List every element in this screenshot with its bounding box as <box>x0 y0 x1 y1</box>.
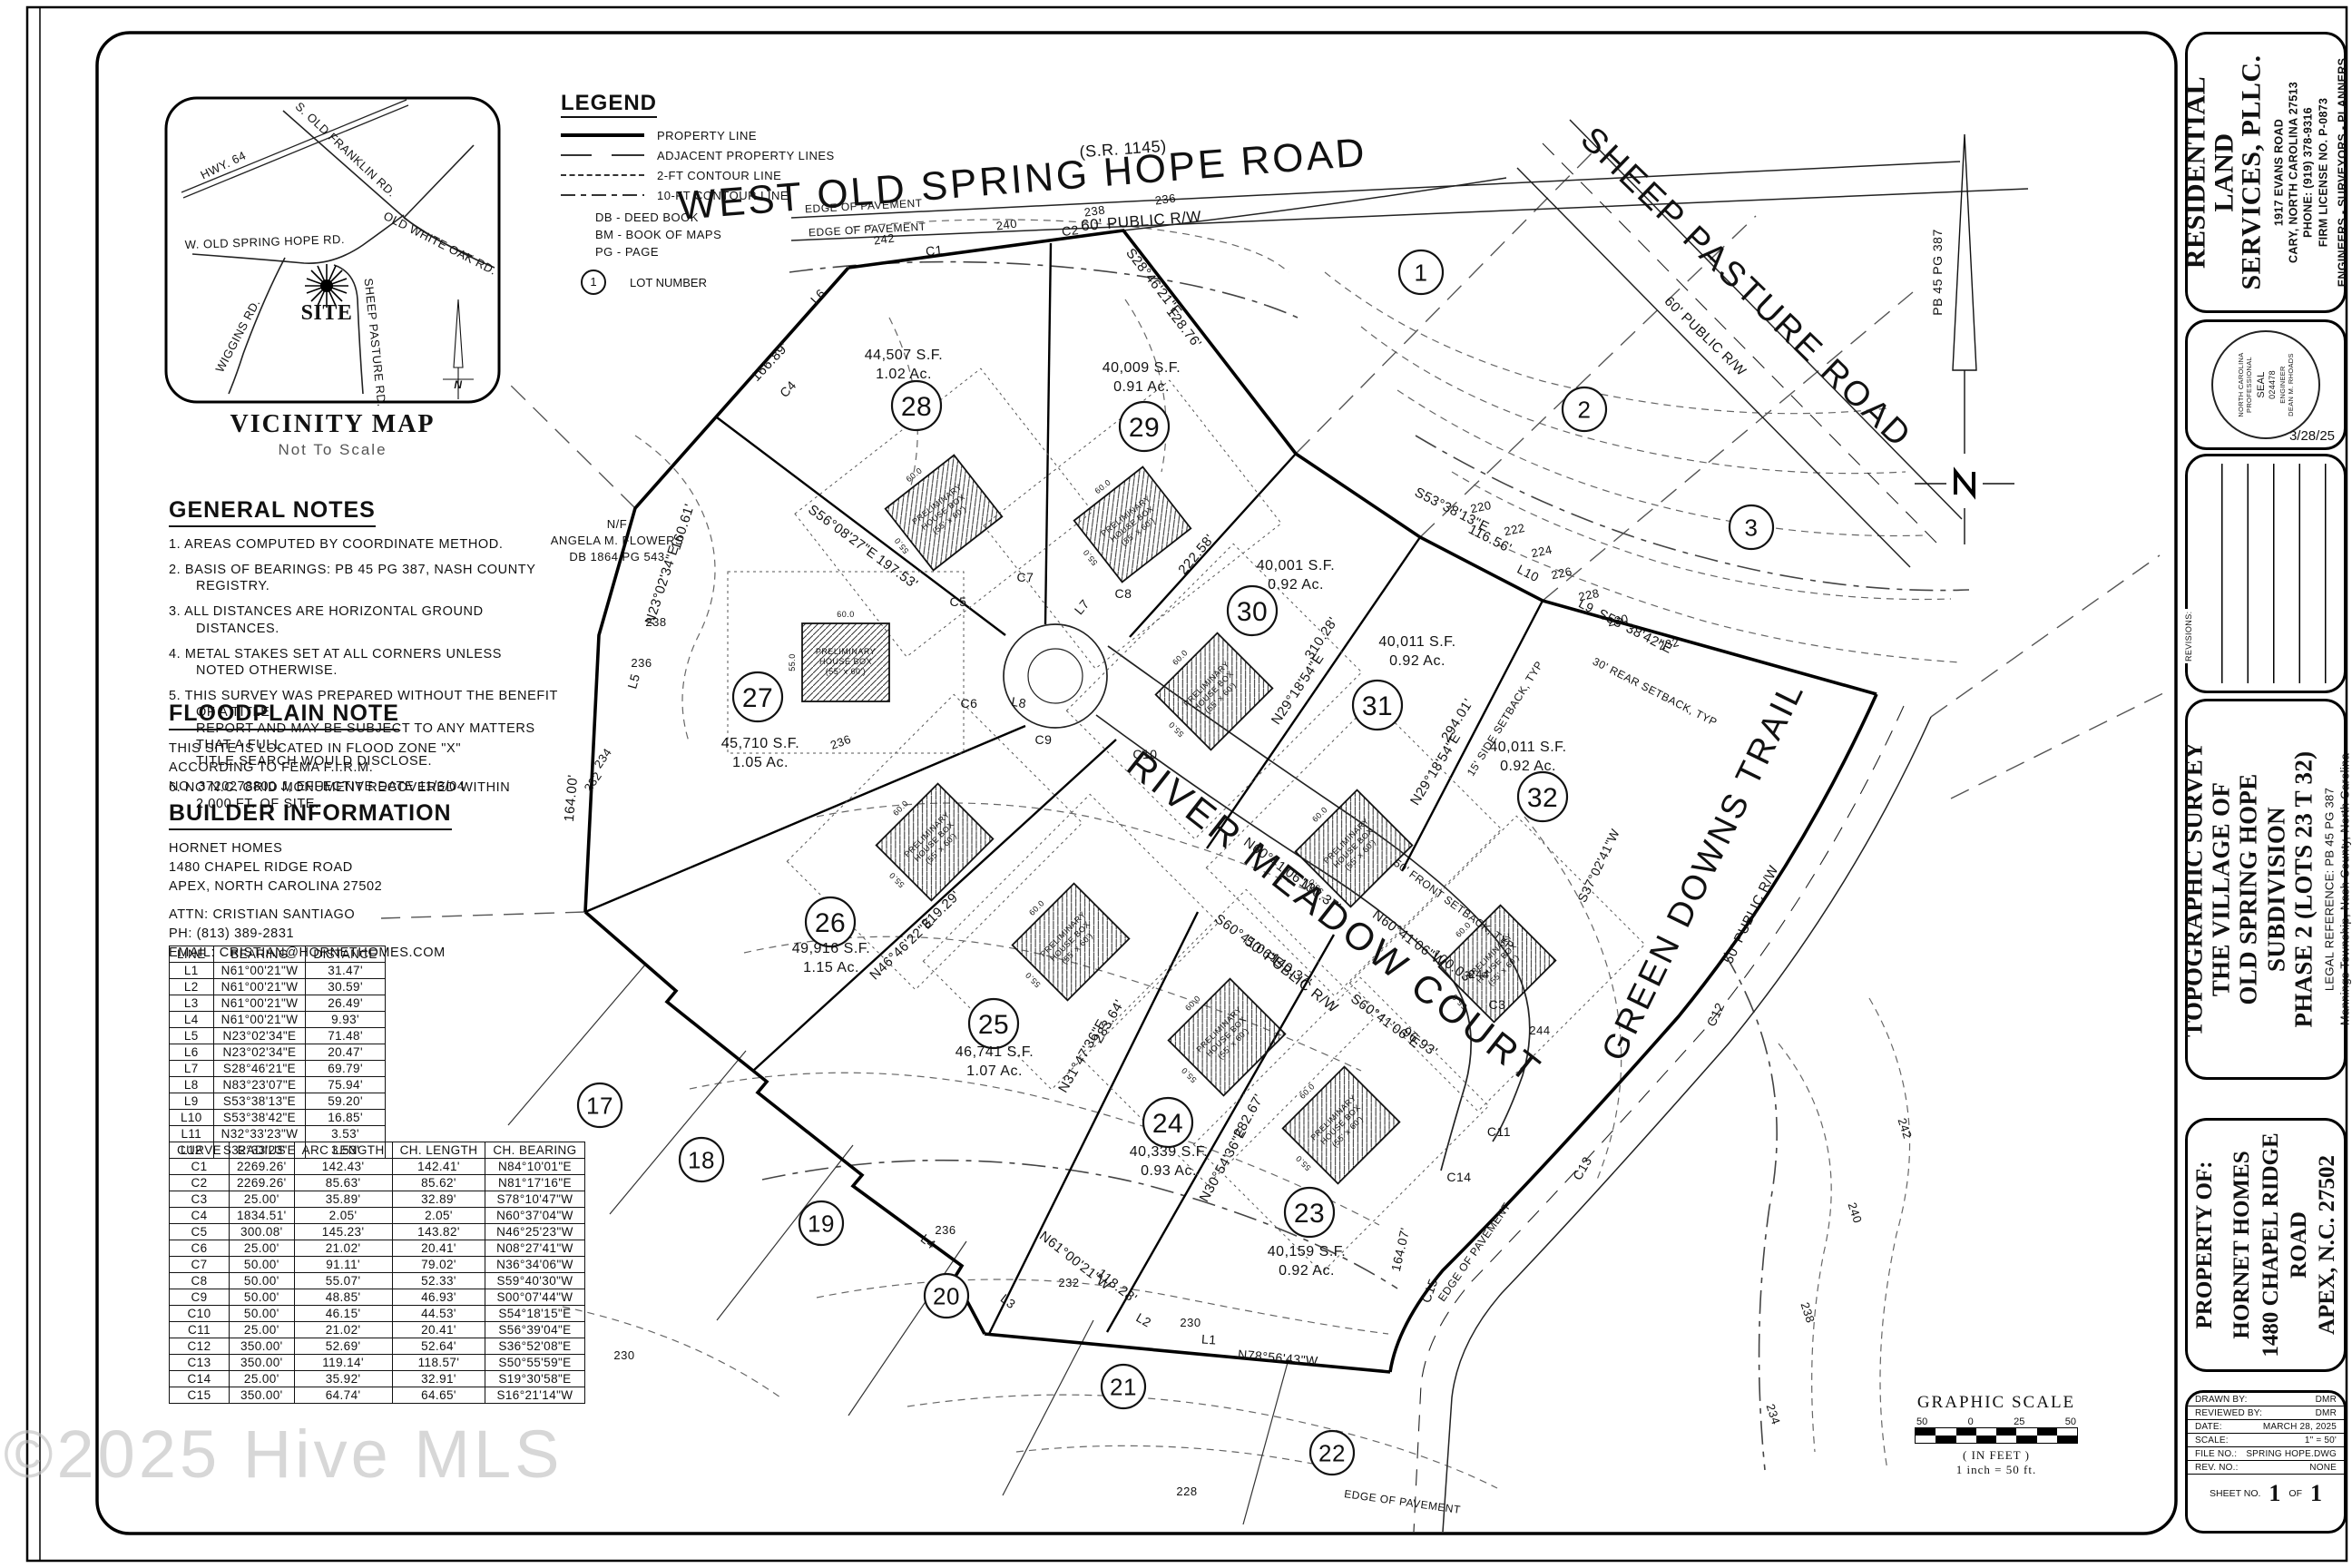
plat-annotation: C11 <box>1487 1124 1511 1139</box>
table-cell: C8 <box>170 1273 230 1289</box>
table-cell: C2 <box>170 1175 230 1191</box>
lot-number: 28 <box>901 392 932 422</box>
table-cell: 25.00' <box>230 1322 295 1338</box>
list-item <box>169 897 568 906</box>
firm-address1: 1917 EVANS ROAD <box>2271 40 2286 305</box>
table-cell: ARC LENGTH <box>294 1142 392 1159</box>
firm-block: RESIDENTIAL LAND SERVICES, PLLC. 1917 EV… <box>2185 32 2347 313</box>
table-cell: L4 <box>170 1012 214 1028</box>
legend-item-2ft-contour: 2-FT CONTOUR LINE <box>561 165 924 185</box>
lot-number: 1 <box>1415 259 1428 286</box>
road-sheep-pasture <box>1517 120 1962 567</box>
plat-annotation: C12 <box>1703 1000 1727 1028</box>
table-cell: 16.85' <box>306 1110 385 1126</box>
plat-annotation: C13 <box>1570 1154 1594 1183</box>
table-cell: N61°00'21"W <box>213 979 306 995</box>
table-cell: S00°07'44"W <box>485 1289 584 1306</box>
table-cell: C11 <box>170 1322 230 1338</box>
lot-number: 26 <box>815 908 846 938</box>
table-cell: 91.11' <box>294 1257 392 1273</box>
lot-area-acres: 1.07 Ac. <box>966 1063 1023 1079</box>
seal-date: 3/28/25 <box>2289 428 2335 444</box>
plat-annotation: C5 <box>950 594 967 609</box>
info-scale: SCALE:1" = 50' <box>2188 1434 2344 1447</box>
house-box-dim: 55.0 <box>788 653 797 671</box>
firm-name-line1: RESIDENTIAL LAND <box>2183 40 2239 305</box>
table-cell: 69.79' <box>306 1061 385 1077</box>
contour-label: 240 <box>995 217 1018 233</box>
house-box: PRELIMINARYHOUSE BOX(55' x 60')60.055.0 <box>1263 1057 1400 1194</box>
table-cell: S56°39'04"E <box>485 1322 584 1338</box>
table-cell: C3 <box>170 1191 230 1208</box>
table-cell: 79.02' <box>392 1257 485 1273</box>
survey-legal-reference: LEGAL REFERENCE: PB 45 PG 387 <box>2323 708 2337 1071</box>
curve-table: CURVERADIUSARC LENGTHCH. LENGTHCH. BEARI… <box>169 1142 585 1404</box>
table-cell: 1834.51' <box>230 1208 295 1224</box>
plat-annotation: C4 <box>777 377 799 400</box>
list-item: 3. ALL DISTANCES ARE HORIZONTAL GROUND D… <box>169 603 568 636</box>
owner-name: HORNET HOMES <box>2228 1126 2256 1364</box>
seal-arc1: NORTH CAROLINA <box>2237 352 2245 416</box>
property-line-sample <box>561 133 644 137</box>
table-cell: N61°00'21"W <box>213 963 306 979</box>
builder-title: BUILDER INFORMATION <box>169 800 452 830</box>
table-cell: C4 <box>170 1208 230 1224</box>
seal-arc2: PROFESSIONAL <box>2245 352 2253 416</box>
builder-information: BUILDER INFORMATION HORNET HOMES 1480 CH… <box>169 800 568 963</box>
lot-area-sf: 49,916 S.F. <box>792 941 870 956</box>
table-cell: LINE <box>170 946 214 963</box>
house-box-label: HOUSE BOX <box>819 657 872 666</box>
lot-number: 18 <box>688 1146 715 1173</box>
firm-phone: PHONE: (919) 378-9316 <box>2301 40 2316 305</box>
seal-engineer: ENGINEER <box>2278 352 2287 416</box>
plat-labels: (S.R. 1145)WEST OLD SPRING HOPE ROAD60' … <box>551 120 1945 1516</box>
seal-word: SEAL <box>2256 352 2269 416</box>
contour-label: 238 <box>645 615 666 629</box>
plat-annotation: EDGE OF PAVEMENT <box>1436 1200 1514 1303</box>
contour-label: 226 <box>1550 564 1573 582</box>
plat-annotation: N78°56'43"W <box>1238 1347 1319 1368</box>
lot-area-acres: 1.15 Ac. <box>803 960 859 975</box>
graphic-scale: GRAPHIC SCALE 500 2550 ( IN FEET ) 1 inc… <box>1915 1393 2078 1477</box>
house-box: PRELIMINARYHOUSE BOX(55' x 60')60.055.0 <box>1149 969 1286 1106</box>
table-cell: 21.02' <box>294 1240 392 1257</box>
graphic-scale-title: GRAPHIC SCALE <box>1915 1393 2078 1413</box>
survey-title-line1: TOPOGRAPHIC SURVEY <box>2180 708 2207 1071</box>
plat-annotation: L8 <box>1010 694 1027 711</box>
table-cell: 64.74' <box>294 1387 392 1404</box>
table-cell: 50.00' <box>230 1289 295 1306</box>
table-cell: 52.64' <box>392 1338 485 1355</box>
plat-annotation: L7 <box>1072 596 1093 617</box>
table-cell: S59°40'30"W <box>485 1273 584 1289</box>
survey-title-block: TOPOGRAPHIC SURVEY THE VILLAGE OF OLD SP… <box>2185 699 2347 1080</box>
table-cell: N08°27'41"W <box>485 1240 584 1257</box>
table-cell: 142.41' <box>392 1159 485 1175</box>
sheet-total: 1 <box>2310 1480 2322 1507</box>
plat-annotation: 160.61' <box>669 502 698 552</box>
table-cell: L9 <box>170 1093 214 1110</box>
contour-10ft-sample <box>561 194 644 196</box>
table-cell: C13 <box>170 1355 230 1371</box>
table-cell: 75.94' <box>306 1077 385 1093</box>
table-cell: C7 <box>170 1257 230 1273</box>
table-cell: 25.00' <box>230 1191 295 1208</box>
contour-label: 220 <box>1469 498 1493 515</box>
seal-block: NORTH CAROLINA PROFESSIONAL SEAL 024478 … <box>2185 319 2347 450</box>
table-cell: S78°10'47"W <box>485 1191 584 1208</box>
legend: LEGEND PROPERTY LINE ADJACENT PROPERTY L… <box>561 91 924 295</box>
legend-abbrev-pg: PG - PAGE <box>561 245 924 262</box>
plat-annotation: C8 <box>1115 586 1132 601</box>
list-item: 2. BASIS OF BEARINGS: PB 45 PG 387, NASH… <box>169 562 568 594</box>
contour-label: 244 <box>1529 1024 1550 1037</box>
table-cell: L1 <box>170 963 214 979</box>
table-cell: 20.41' <box>392 1240 485 1257</box>
table-cell: S53°38'42"E <box>213 1110 306 1126</box>
seal-name: DEAN M. RHOADS <box>2287 352 2295 416</box>
table-cell: CURVE <box>170 1142 230 1159</box>
graphic-scale-ticks: 500 2550 <box>1916 1416 2076 1427</box>
table-cell: BEARING <box>213 946 306 963</box>
table-cell: 50.00' <box>230 1257 295 1273</box>
lot-number: 21 <box>1110 1373 1137 1400</box>
table-cell: 64.65' <box>392 1387 485 1404</box>
table-cell: S36°52'08"E <box>485 1338 584 1355</box>
north-arrow-icon <box>1915 134 2014 544</box>
table-cell: 32.91' <box>392 1371 485 1387</box>
owner-address: 1480 CHAPEL RIDGE ROAD <box>2256 1126 2313 1364</box>
plat-annotation: C7 <box>1017 570 1034 584</box>
contour-label: 236 <box>935 1223 955 1237</box>
lot-number: 17 <box>586 1092 613 1119</box>
table-cell: 26.49' <box>306 995 385 1012</box>
lot-number: 22 <box>1318 1439 1346 1466</box>
revision-rules <box>2197 464 2335 683</box>
table-cell: N23°02'34"E <box>213 1044 306 1061</box>
table-cell: C15 <box>170 1387 230 1404</box>
table-cell: 46.15' <box>294 1306 392 1322</box>
lot-number: 32 <box>1527 783 1558 813</box>
floodplain-title: FLOODPLAIN NOTE <box>169 701 399 730</box>
table-cell: 350.00' <box>230 1355 295 1371</box>
plat-annotation: L5 <box>624 671 642 690</box>
survey-title-line3: OLD SPRING HOPE SUBDIVISION <box>2235 708 2289 1071</box>
property-boundary <box>585 230 1877 1372</box>
lot-area-sf: 40,339 S.F. <box>1130 1144 1208 1160</box>
table-cell: 32.89' <box>392 1191 485 1208</box>
table-cell: 350.00' <box>230 1387 295 1404</box>
legend-item-property-line: PROPERTY LINE <box>561 125 924 145</box>
lot-area-acres: 0.93 Ac. <box>1141 1163 1197 1179</box>
property-of-block: PROPERTY OF: HORNET HOMES 1480 CHAPEL RI… <box>2185 1118 2347 1372</box>
plat-annotation: SHEEP PASTURE ROAD <box>1573 120 1919 456</box>
legend-item-adjacent-lines: ADJACENT PROPERTY LINES <box>561 145 924 165</box>
lot-number: 31 <box>1362 691 1393 721</box>
plat-annotation: 164.07' <box>1388 1226 1413 1272</box>
vicinity-subtitle: Not To Scale <box>166 441 499 459</box>
firm-license: FIRM LICENSE NO. P-0873 <box>2316 40 2330 305</box>
lot-number: 24 <box>1152 1109 1183 1139</box>
table-cell: N32°33'23"W <box>213 1126 306 1142</box>
lot-area-sf: 40,159 S.F. <box>1268 1244 1346 1259</box>
table-cell: S28°46'21"E <box>213 1061 306 1077</box>
contour-label: 238 <box>1083 203 1106 220</box>
vicinity-map: HWY. 64S. OLD FRANKLIN RD.W. OLD SPRING … <box>166 98 499 407</box>
table-cell: CH. LENGTH <box>392 1142 485 1159</box>
table-cell: 35.92' <box>294 1371 392 1387</box>
table-cell: N83°23'07"E <box>213 1077 306 1093</box>
vicinity-caption: VICINITY MAP Not To Scale <box>166 410 499 459</box>
revisions-label: REVISIONS: <box>2184 609 2193 663</box>
plat-annotation: EDGE OF PAVEMENT <box>1343 1487 1461 1516</box>
legend-abbrev-db: DB - DEED BOOK <box>561 211 924 228</box>
plat-annotation: 50' PUBLIC R/W <box>1720 863 1781 966</box>
table-cell: L6 <box>170 1044 214 1061</box>
table-cell: 52.69' <box>294 1338 392 1355</box>
table-cell: 85.62' <box>392 1175 485 1191</box>
table-cell: L2 <box>170 979 214 995</box>
firm-address2: CARY, NORTH CAROLINA 27513 <box>2287 40 2301 305</box>
plat-annotation: N/F <box>607 517 627 531</box>
general-notes-title: GENERAL NOTES <box>169 497 376 527</box>
floodplain-text: THIS SITE IS LOCATED IN FLOOD ZONE "X" A… <box>169 740 568 797</box>
contour-label: 242 <box>1896 1116 1915 1141</box>
adjacent-lot-lines <box>508 964 1289 1524</box>
info-rev-no: REV. NO.:NONE <box>2188 1461 2344 1475</box>
survey-township: Mannings Township, Nash County, North Ca… <box>2338 708 2352 1071</box>
lot-division-lines <box>585 243 1543 1334</box>
legend-lot-number: 1 LOT NUMBER <box>561 269 924 295</box>
plat-annotation: C10 <box>1132 747 1157 761</box>
lot-number: 27 <box>742 683 773 713</box>
contour-label: 228 <box>1176 1485 1197 1498</box>
table-cell: N36°34'06"W <box>485 1257 584 1273</box>
lot-number: 30 <box>1237 597 1268 627</box>
table-cell: 48.85' <box>294 1289 392 1306</box>
table-cell: S53°38'13"E <box>213 1093 306 1110</box>
table-cell: N60°37'04"W <box>485 1208 584 1224</box>
table-cell: 142.43' <box>294 1159 392 1175</box>
plat-annotation: 222.58' <box>1175 532 1218 578</box>
table-cell: 31.47' <box>306 963 385 979</box>
house-box: PRELIMINARYHOUSE BOX(55' x 60')60.055.0 <box>1136 623 1273 760</box>
plat-annotation: S37°02'41"W <box>1574 826 1622 904</box>
table-cell: 50.00' <box>230 1273 295 1289</box>
professional-seal: NORTH CAROLINA PROFESSIONAL SEAL 024478 … <box>2211 330 2320 439</box>
table-cell: 119.14' <box>294 1355 392 1371</box>
table-cell: 55.07' <box>294 1273 392 1289</box>
graphic-scale-bar <box>1915 1427 2078 1444</box>
house-box: PRELIMINARYHOUSE BOX(55' x 60')60.055.0 <box>788 610 889 701</box>
info-drawn-by: DRAWN BY:DMR <box>2188 1393 2344 1406</box>
plat-annotation: L2 <box>1133 1310 1153 1330</box>
revisions-block: REVISIONS: <box>2185 454 2347 693</box>
lot-area-acres: 1.02 Ac. <box>876 367 932 382</box>
sheet-number: 1 <box>2269 1480 2280 1507</box>
lot-number-symbol: 1 <box>581 269 606 295</box>
house-box: PRELIMINARYHOUSE BOX(55' x 60')60.055.0 <box>857 774 994 911</box>
table-cell: L7 <box>170 1061 214 1077</box>
lot-number: 19 <box>808 1210 835 1237</box>
plat-annotation: 30' REAR SETBACK, TYP <box>1591 655 1720 729</box>
plat-annotation: L1 <box>1201 1331 1218 1347</box>
survey-title-line4: PHASE 2 (LOTS 23 T 32) <box>2289 708 2317 1071</box>
builder-text: HORNET HOMES 1480 CHAPEL RIDGE ROAD APEX… <box>169 839 568 963</box>
house-box-label: PRELIMINARY <box>816 647 876 656</box>
contour-label: 244 <box>1468 967 1489 981</box>
plat-annotation: C14 <box>1446 1170 1471 1184</box>
table-cell: L3 <box>170 995 214 1012</box>
table-cell: 71.48' <box>306 1028 385 1044</box>
vicinity-road-label: SITE <box>301 301 353 325</box>
table-cell: 350.00' <box>230 1338 295 1355</box>
table-cell: 52.33' <box>392 1273 485 1289</box>
table-cell: C5 <box>170 1224 230 1240</box>
contour-2ft-sample <box>561 174 644 176</box>
house-box: PRELIMINARYHOUSE BOX(55' x 60')60.055.0 <box>1054 456 1191 592</box>
vicinity-road-label: N <box>454 378 462 391</box>
table-cell: N23°02'34"E <box>213 1028 306 1044</box>
table-cell: 2269.26' <box>230 1159 295 1175</box>
table-cell: L10 <box>170 1110 214 1126</box>
lot-area-acres: 0.92 Ac. <box>1389 653 1445 669</box>
graphic-scale-units: ( IN FEET ) <box>1915 1448 2078 1463</box>
lot-area-acres: 0.91 Ac. <box>1113 379 1170 395</box>
lot-number: 20 <box>933 1282 960 1309</box>
lot-number: 29 <box>1129 413 1160 443</box>
table-cell: 59.20' <box>306 1093 385 1110</box>
contour-label: 234 <box>1764 1402 1783 1426</box>
table-cell: C12 <box>170 1338 230 1355</box>
table-cell: S19°30'58"E <box>485 1371 584 1387</box>
plat-annotation: C15 <box>1418 1277 1440 1305</box>
table-cell: N84°10'01"E <box>485 1159 584 1175</box>
contour-label: 236 <box>828 732 853 752</box>
table-cell: L5 <box>170 1028 214 1044</box>
table-cell: L8 <box>170 1077 214 1093</box>
survey-sheet: PRELIMINARYHOUSE BOX(55' x 60')60.055.0P… <box>0 0 2352 1568</box>
graphic-scale-ratio: 1 inch = 50 ft. <box>1915 1463 2078 1477</box>
table-cell: RADIUS <box>230 1142 295 1159</box>
table-cell: 21.02' <box>294 1322 392 1338</box>
table-cell: 143.82' <box>392 1224 485 1240</box>
watermark: ©2025 Hive MLS <box>4 1416 563 1493</box>
line-table: LINEBEARINGDISTANCEL1N61°00'21"W31.47'L2… <box>169 946 386 1159</box>
info-file-no: FILE NO.:SPRING HOPE.DWG <box>2188 1447 2344 1461</box>
contour-label: 232 <box>582 769 605 795</box>
table-cell: 25.00' <box>230 1240 295 1257</box>
plat-annotation: 60' PUBLIC R/W <box>1661 294 1749 380</box>
info-date: DATE:MARCH 28, 2025 <box>2188 1420 2344 1434</box>
legend-abbrev-bm: BM - BOOK OF MAPS <box>561 228 924 245</box>
table-cell: N46°25'23"W <box>485 1224 584 1240</box>
lot-area-sf: 40,001 S.F. <box>1257 558 1335 573</box>
plat-annotation: L10 <box>1515 562 1542 585</box>
table-cell: 44.53' <box>392 1306 485 1322</box>
seal-number: 024478 <box>2268 352 2278 416</box>
lot-area-sf: 40,009 S.F. <box>1102 360 1181 376</box>
table-cell: C10 <box>170 1306 230 1322</box>
lot-area-sf: 45,710 S.F. <box>721 736 799 751</box>
legend-title: LEGEND <box>561 91 657 118</box>
list-item: THIS SITE IS LOCATED IN FLOOD ZONE "X" A… <box>169 740 568 797</box>
plat-annotation: 310.28' <box>1302 614 1341 662</box>
table-cell: 30.59' <box>306 979 385 995</box>
lot-area-sf: 40,011 S.F. <box>1378 634 1455 650</box>
table-cell: 20.47' <box>306 1044 385 1061</box>
drawing-info-block: DRAWN BY:DMR REVIEWED BY:DMR DATE:MARCH … <box>2185 1390 2347 1534</box>
contour-label: 240 <box>1846 1200 1865 1225</box>
contour-label: 232 <box>1058 1276 1079 1289</box>
table-cell: C14 <box>170 1371 230 1387</box>
plat-annotation: DB 1864 PG 543 <box>569 550 664 563</box>
table-cell: S54°18'15"E <box>485 1306 584 1322</box>
lot-area-acres: 0.92 Ac. <box>1268 577 1324 593</box>
plat-annotation: C9 <box>1035 732 1053 747</box>
contour-label: 224 <box>1530 543 1553 560</box>
table-cell: N61°00'21"W <box>213 1012 306 1028</box>
plat-annotation: C1 <box>925 242 943 259</box>
property-of-label: PROPERTY OF: <box>2190 1126 2219 1364</box>
table-cell: C6 <box>170 1240 230 1257</box>
contour-label: 230 <box>613 1348 634 1362</box>
table-cell: C9 <box>170 1289 230 1306</box>
lot-area-sf: 44,507 S.F. <box>865 348 943 363</box>
contour-label: 230 <box>1180 1316 1200 1329</box>
table-cell: 118.57' <box>392 1355 485 1371</box>
table-cell: 2.05' <box>392 1208 485 1224</box>
table-cell: 9.93' <box>306 1012 385 1028</box>
lot-area-sf: 46,741 S.F. <box>955 1044 1034 1060</box>
table-cell: DISTANCE <box>306 946 385 963</box>
survey-title-line2: THE VILLAGE OF <box>2208 708 2235 1071</box>
list-item: 1. AREAS COMPUTED BY COORDINATE METHOD. <box>169 536 568 553</box>
table-cell: L11 <box>170 1126 214 1142</box>
lot-number: 2 <box>1578 396 1592 423</box>
table-cell: 3.53' <box>306 1126 385 1142</box>
table-cell: 46.93' <box>392 1289 485 1306</box>
table-cell: S16°21'14"W <box>485 1387 584 1404</box>
table-cell: 2.05' <box>294 1208 392 1224</box>
lot-number: 3 <box>1745 514 1759 541</box>
vicinity-title: VICINITY MAP <box>166 410 499 439</box>
house-box-label: (55' x 60') <box>826 667 866 676</box>
plat-annotation: 166.89' <box>749 339 792 385</box>
table-cell: N81°17'16"E <box>485 1175 584 1191</box>
adjacent-lines-sample <box>561 154 644 156</box>
house-box-dim: 60.0 <box>837 610 855 619</box>
contour-label: 222 <box>1503 521 1526 538</box>
plat-annotation: C6 <box>961 696 978 710</box>
list-item: 4. METAL STAKES SET AT ALL CORNERS UNLES… <box>169 646 568 679</box>
contour-label: 236 <box>631 656 652 670</box>
sheet-number-row: SHEET NO. 1 OF 1 <box>2188 1475 2344 1507</box>
firm-tagline: ENGINEERS - SURVEYORS - PLANNERS <box>2336 40 2348 305</box>
table-cell: 35.89' <box>294 1191 392 1208</box>
contour-label: 236 <box>1154 191 1177 208</box>
table-cell: 145.23' <box>294 1224 392 1240</box>
table-cell: 300.08' <box>230 1224 295 1240</box>
table-cell: N61°00'21"W <box>213 995 306 1012</box>
plat-annotation: C3 <box>1489 997 1506 1012</box>
info-reviewed-by: REVIEWED BY:DMR <box>2188 1406 2344 1420</box>
table-cell: 50.00' <box>230 1306 295 1322</box>
plat-annotation: ANGELA M. FLOWERS <box>551 534 683 547</box>
floodplain-note: FLOODPLAIN NOTE THIS SITE IS LOCATED IN … <box>169 701 568 797</box>
table-cell: 25.00' <box>230 1371 295 1387</box>
